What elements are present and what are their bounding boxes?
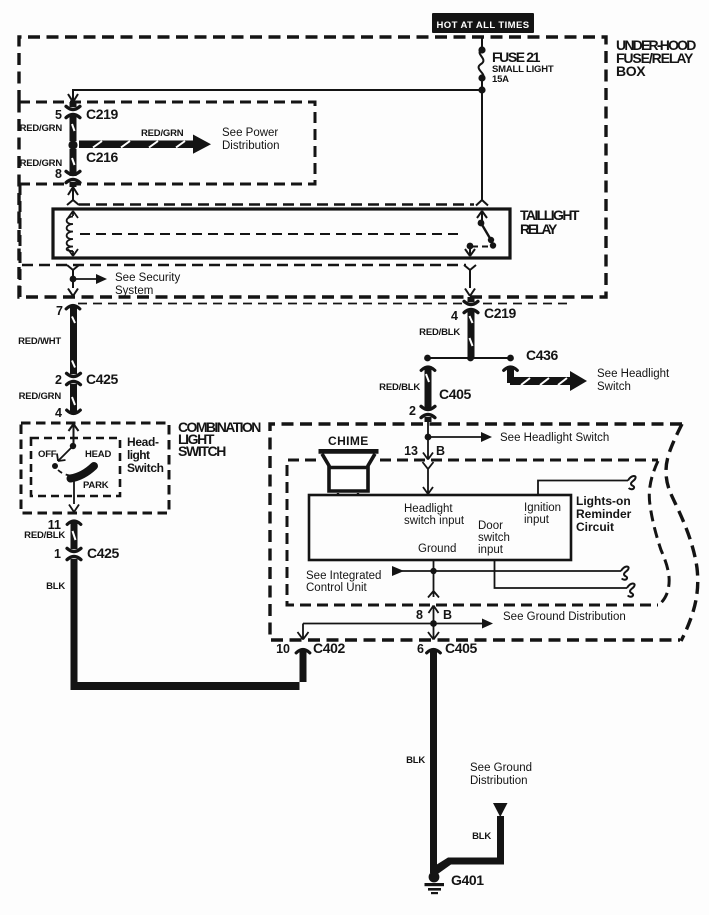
svg-text:RED/BLK: RED/BLK — [379, 382, 420, 393]
svg-text:Lights-on: Lights-on — [576, 494, 631, 508]
svg-text:See Power: See Power — [222, 127, 278, 139]
svg-text:G401: G401 — [451, 872, 484, 888]
svg-text:8: 8 — [55, 167, 62, 181]
svg-text:Ignition: Ignition — [524, 502, 561, 514]
svg-text:input: input — [478, 544, 504, 556]
svg-text:RED/WHT: RED/WHT — [18, 336, 61, 347]
svg-text:PARK: PARK — [83, 480, 109, 491]
svg-text:5: 5 — [55, 108, 62, 122]
svg-text:RED/BLK: RED/BLK — [419, 327, 460, 338]
svg-text:B: B — [443, 608, 452, 622]
svg-text:See Headlight: See Headlight — [597, 368, 670, 380]
svg-text:8: 8 — [416, 608, 423, 622]
svg-text:6: 6 — [417, 642, 424, 656]
svg-text:See Ground Distribution: See Ground Distribution — [503, 611, 626, 623]
svg-text:C436: C436 — [526, 347, 558, 363]
svg-text:7: 7 — [56, 304, 63, 318]
svg-text:switch input: switch input — [404, 515, 465, 527]
svg-text:RED/GRN: RED/GRN — [141, 128, 184, 139]
svg-text:FUSE 21: FUSE 21 — [492, 49, 541, 65]
svg-text:BLK: BLK — [472, 831, 491, 842]
svg-text:4: 4 — [451, 309, 458, 323]
svg-text:BLK: BLK — [46, 581, 65, 592]
svg-text:BLK: BLK — [406, 755, 425, 766]
svg-text:C219: C219 — [484, 305, 516, 321]
svg-text:CHIME: CHIME — [328, 434, 369, 448]
svg-text:Head-: Head- — [127, 435, 159, 449]
svg-text:HEAD: HEAD — [85, 449, 111, 460]
svg-text:HOT AT ALL TIMES: HOT AT ALL TIMES — [437, 20, 530, 31]
svg-text:C425: C425 — [87, 545, 119, 561]
svg-text:Door: Door — [478, 520, 503, 532]
svg-text:Circuit: Circuit — [576, 520, 614, 534]
svg-text:System: System — [115, 285, 153, 297]
svg-text:B: B — [436, 444, 445, 458]
svg-text:Distribution: Distribution — [222, 140, 280, 152]
svg-text:15A: 15A — [492, 74, 509, 85]
svg-text:C219: C219 — [86, 106, 118, 122]
svg-text:2: 2 — [409, 404, 416, 418]
svg-text:Switch: Switch — [597, 381, 631, 393]
svg-text:input: input — [524, 514, 550, 526]
svg-text:Reminder: Reminder — [576, 507, 632, 521]
svg-text:2: 2 — [55, 373, 62, 387]
svg-text:See Ground: See Ground — [470, 762, 532, 774]
svg-text:See Security: See Security — [115, 272, 180, 284]
svg-text:RED/BLK: RED/BLK — [24, 530, 65, 541]
svg-text:Control Unit: Control Unit — [306, 582, 368, 594]
svg-text:13: 13 — [404, 444, 418, 458]
svg-text:C405: C405 — [445, 640, 477, 656]
svg-text:RED/GRN: RED/GRN — [20, 123, 63, 134]
svg-text:BOX: BOX — [616, 63, 646, 79]
svg-text:switch: switch — [478, 532, 510, 544]
svg-text:OFF: OFF — [38, 449, 57, 460]
svg-text:RELAY: RELAY — [520, 221, 558, 237]
svg-text:Switch: Switch — [127, 461, 164, 475]
svg-text:light: light — [127, 448, 150, 462]
svg-text:1: 1 — [54, 547, 61, 561]
svg-text:SWITCH: SWITCH — [178, 443, 226, 459]
svg-text:See Integrated: See Integrated — [306, 570, 381, 582]
svg-text:C405: C405 — [439, 386, 471, 402]
svg-text:Distribution: Distribution — [470, 775, 528, 787]
svg-text:C402: C402 — [313, 640, 345, 656]
svg-text:See Headlight Switch: See Headlight Switch — [500, 432, 609, 444]
svg-text:Headlight: Headlight — [404, 503, 453, 515]
svg-text:Ground: Ground — [418, 543, 456, 555]
svg-text:10: 10 — [276, 642, 290, 656]
svg-text:RED/GRN: RED/GRN — [19, 391, 62, 402]
svg-text:C425: C425 — [86, 371, 118, 387]
svg-text:4: 4 — [55, 406, 62, 420]
svg-text:C216: C216 — [86, 149, 118, 165]
